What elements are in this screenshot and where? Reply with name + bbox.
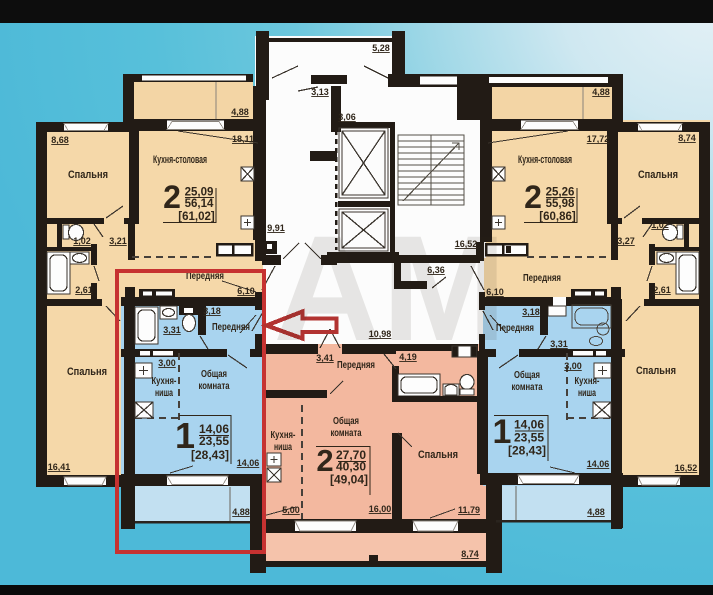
svg-text:3,00: 3,00	[564, 361, 582, 371]
svg-text:1,02: 1,02	[73, 236, 91, 246]
svg-text:Общая: Общая	[333, 415, 359, 427]
svg-text:4,88: 4,88	[587, 507, 605, 517]
svg-text:4,88: 4,88	[592, 87, 610, 97]
svg-text:[28,43]: [28,43]	[191, 448, 229, 462]
svg-text:2: 2	[163, 179, 181, 215]
svg-text:3,00: 3,00	[158, 358, 176, 368]
svg-text:комната: комната	[331, 428, 362, 439]
svg-text:16,41: 16,41	[48, 462, 71, 472]
svg-text:2,61: 2,61	[653, 285, 671, 295]
svg-text:ниша: ниша	[155, 388, 173, 399]
svg-text:4,88: 4,88	[232, 507, 250, 517]
svg-text:Спальня: Спальня	[68, 169, 108, 181]
svg-text:8,74: 8,74	[678, 133, 696, 143]
svg-text:5,28: 5,28	[372, 43, 390, 53]
svg-text:Спальня: Спальня	[418, 449, 458, 461]
svg-text:25,26: 25,26	[546, 187, 575, 199]
svg-text:АМ: АМ	[273, 204, 506, 372]
svg-text:Передняя: Передняя	[212, 322, 250, 333]
svg-text:3,18: 3,18	[522, 307, 540, 317]
svg-text:3,18: 3,18	[203, 306, 221, 316]
svg-text:16,00: 16,00	[369, 504, 392, 514]
svg-text:14,06: 14,06	[587, 459, 610, 469]
svg-text:2: 2	[524, 179, 542, 215]
svg-text:ниша: ниша	[578, 388, 596, 399]
svg-text:11,79: 11,79	[458, 505, 480, 515]
svg-text:23,55: 23,55	[199, 434, 229, 448]
svg-text:комната: комната	[199, 381, 230, 392]
svg-text:2,61: 2,61	[75, 285, 93, 295]
svg-text:3,31: 3,31	[163, 325, 181, 335]
svg-text:23,55: 23,55	[514, 431, 544, 445]
svg-text:14,06: 14,06	[237, 458, 260, 468]
svg-text:[49,04]: [49,04]	[330, 473, 368, 487]
svg-text:[61,02]: [61,02]	[178, 211, 215, 223]
svg-text:55,98: 55,98	[546, 198, 575, 210]
svg-text:Кухня-столовая: Кухня-столовая	[518, 154, 572, 166]
svg-text:Передняя: Передняя	[523, 273, 561, 284]
svg-text:комната: комната	[512, 382, 543, 393]
svg-text:8,74: 8,74	[461, 549, 479, 559]
svg-text:6,10: 6,10	[237, 286, 255, 296]
svg-text:Кухня-столовая: Кухня-столовая	[153, 154, 207, 166]
svg-text:Спальня: Спальня	[67, 366, 107, 378]
svg-text:Кухня-: Кухня-	[271, 430, 296, 441]
svg-text:40,30: 40,30	[336, 460, 366, 474]
svg-text:56,14: 56,14	[185, 198, 214, 210]
svg-text:1,02: 1,02	[651, 220, 669, 230]
svg-text:Спальня: Спальня	[636, 365, 676, 377]
svg-text:3,21: 3,21	[109, 236, 127, 246]
svg-text:18,11: 18,11	[232, 134, 254, 144]
svg-text:25,09: 25,09	[185, 187, 214, 199]
svg-text:Кухня-: Кухня-	[152, 376, 177, 387]
svg-text:3,13: 3,13	[311, 87, 329, 97]
svg-text:16,52: 16,52	[675, 463, 698, 473]
svg-text:8,68: 8,68	[51, 135, 69, 145]
svg-text:4,88: 4,88	[231, 107, 249, 117]
svg-text:Спальня: Спальня	[638, 169, 678, 181]
svg-text:3,27: 3,27	[617, 236, 635, 246]
svg-text:Кухня-: Кухня-	[575, 376, 600, 387]
svg-text:[28,43]: [28,43]	[508, 444, 546, 458]
svg-text:5,00: 5,00	[282, 505, 300, 515]
svg-text:3,06: 3,06	[338, 112, 356, 122]
svg-text:[60,86]: [60,86]	[539, 211, 576, 223]
svg-text:14,06: 14,06	[514, 418, 544, 432]
svg-text:ниша: ниша	[274, 442, 292, 453]
svg-text:Общая: Общая	[514, 369, 540, 381]
svg-text:17,72: 17,72	[587, 134, 610, 144]
svg-text:3,31: 3,31	[550, 339, 568, 349]
svg-text:Общая: Общая	[201, 368, 227, 380]
